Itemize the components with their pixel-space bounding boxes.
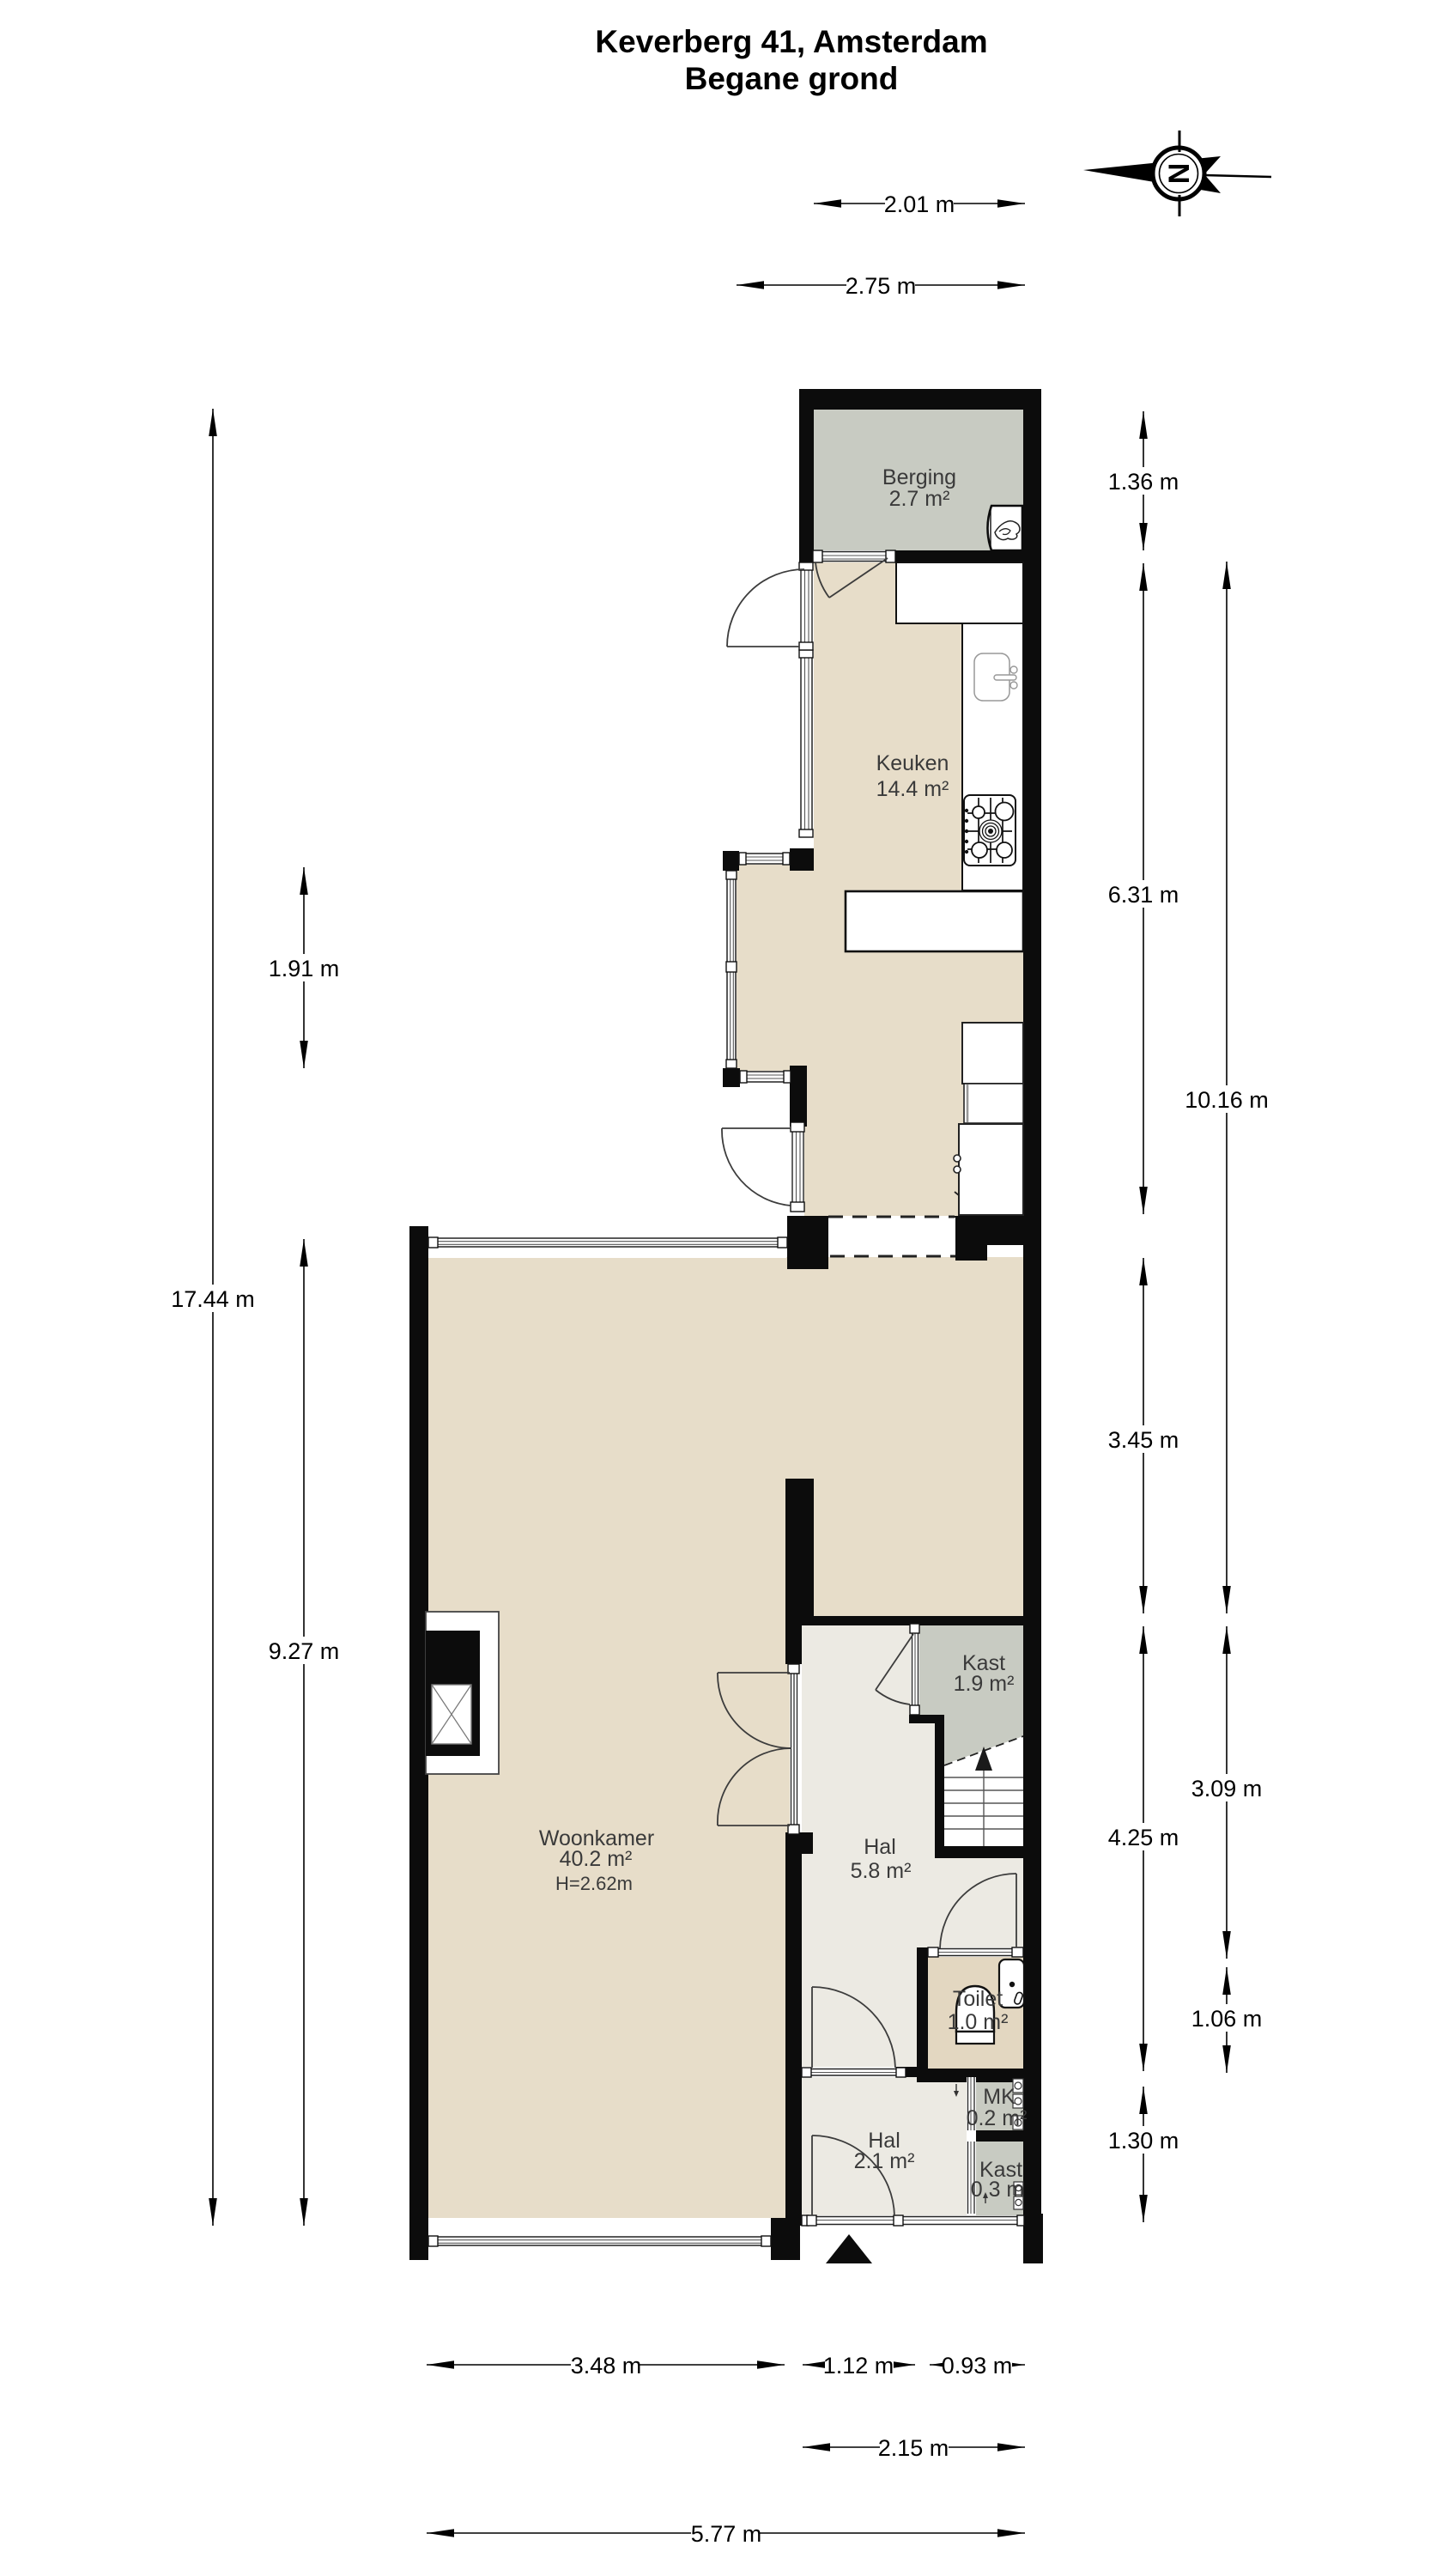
svg-text:Toilet: Toilet: [953, 1987, 1003, 2011]
svg-text:3.09 m: 3.09 m: [1191, 1776, 1263, 1801]
svg-text:1.12 m: 1.12 m: [823, 2353, 894, 2379]
svg-text:2.7 m²: 2.7 m²: [889, 487, 950, 511]
svg-text:2.1 m²: 2.1 m²: [854, 2149, 915, 2173]
svg-text:3.45 m: 3.45 m: [1108, 1427, 1179, 1453]
svg-text:9.27 m: 9.27 m: [269, 1638, 340, 1664]
svg-text:1.0 m²: 1.0 m²: [948, 2010, 1009, 2034]
svg-text:Berging: Berging: [882, 465, 956, 489]
svg-text:N: N: [1163, 163, 1196, 185]
svg-text:Keverberg 41, Amsterdam: Keverberg 41, Amsterdam: [595, 24, 987, 59]
svg-text:1.36 m: 1.36 m: [1108, 469, 1179, 495]
svg-text:Hal: Hal: [864, 1835, 896, 1859]
svg-text:1.9 m²: 1.9 m²: [954, 1672, 1015, 1696]
svg-text:1.30 m: 1.30 m: [1108, 2128, 1179, 2154]
svg-text:1.06 m: 1.06 m: [1191, 2006, 1263, 2032]
svg-text:3.48 m: 3.48 m: [571, 2353, 642, 2379]
svg-text:Keuken: Keuken: [876, 751, 949, 775]
svg-text:MK: MK: [983, 2085, 1016, 2109]
svg-text:2.75 m: 2.75 m: [846, 273, 917, 299]
svg-text:2.15 m: 2.15 m: [878, 2435, 949, 2461]
svg-text:0.93 m: 0.93 m: [942, 2353, 1013, 2379]
svg-text:5.77 m: 5.77 m: [691, 2521, 762, 2547]
svg-text:17.44 m: 17.44 m: [171, 1286, 255, 1312]
svg-text:0.3 m: 0.3 m: [971, 2178, 1025, 2202]
svg-text:H=2.62m: H=2.62m: [555, 1873, 633, 1894]
svg-text:5.8 m²: 5.8 m²: [851, 1859, 912, 1883]
svg-text:10.16 m: 10.16 m: [1185, 1087, 1269, 1113]
svg-text:4.25 m: 4.25 m: [1108, 1825, 1179, 1850]
svg-text:1.91 m: 1.91 m: [269, 956, 340, 981]
svg-text:40.2 m²: 40.2 m²: [560, 1847, 633, 1871]
svg-text:2.01 m: 2.01 m: [884, 191, 955, 217]
svg-text:Begane grond: Begane grond: [685, 61, 899, 96]
svg-text:6.31 m: 6.31 m: [1108, 882, 1179, 908]
svg-text:14.4 m²: 14.4 m²: [876, 777, 949, 801]
svg-text:0.2 m²: 0.2 m²: [967, 2106, 1028, 2130]
